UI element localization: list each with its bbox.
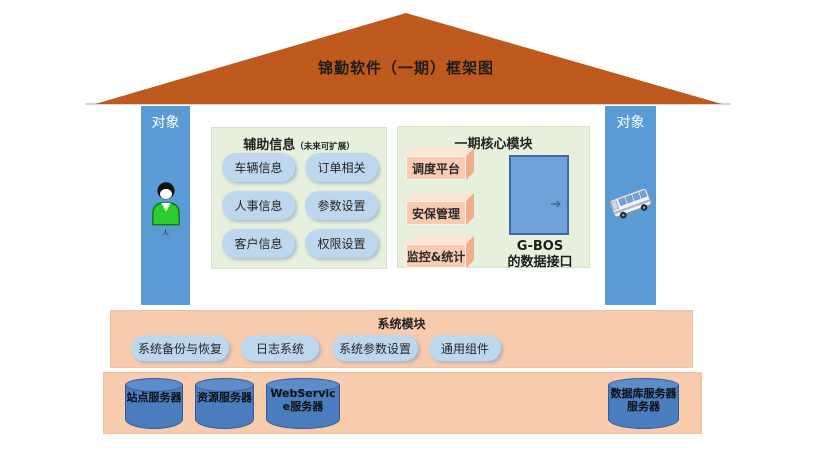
resource-server-cylinder[interactable]: 资源服务器 [195,378,254,429]
gbos-interface-label: G-BOS 的数据接口 [490,239,590,270]
person-icon [149,180,183,230]
aux-panel-subtitle: （未来可扩展） [295,142,355,152]
webservice-server-cylinder[interactable]: WebService服务器 [266,378,340,429]
aux-info-panel: 辅助信息（未来可扩展） 车辆信息 订单相关 人事信息 参数设置 客户信息 权限设… [211,127,387,269]
server-label: WebService服务器 [267,387,339,413]
system-bar-title: 系统模块 [111,315,692,332]
database-server-cylinder[interactable]: 数据库服务器服务器 [608,378,679,429]
aux-panel-title: 辅助信息 [243,138,295,153]
cylinder-top [125,378,183,392]
pillar-right-label: 对象 [605,112,656,132]
sys-button-backup-restore[interactable]: 系统备份与恢复 [131,335,229,361]
door-arrow-icon [551,193,562,212]
gbos-label-line2: 的数据接口 [490,255,590,271]
page-title: 锦勤软件（一期）框架图 [206,57,606,78]
person-caption: 人 [141,228,190,238]
aux-button-permission[interactable]: 权限设置 [305,229,378,258]
cylinder-top [195,378,254,392]
aux-button-customer-info[interactable]: 客户信息 [222,229,295,258]
module-box-top-face [406,193,474,201]
pillar-right-object: 对象 [605,106,656,305]
module-box-top-face [406,148,474,156]
bus-icon [607,180,655,230]
server-label: 数据库服务器服务器 [609,387,678,413]
aux-button-vehicle-info[interactable]: 车辆信息 [222,153,295,182]
gbos-label-line1: G-BOS [490,239,590,255]
module-monitor-stats[interactable]: 监控&统计 [406,236,474,268]
framework-diagram: 锦勤软件（一期）框架图 对象 人 对象 [0,0,813,466]
aux-button-hr-info[interactable]: 人事信息 [222,191,295,220]
server-bar: 站点服务器 资源服务器 WebService服务器 数据库服务器服务器 [103,372,702,434]
sys-button-log-system[interactable]: 日志系统 [241,335,319,361]
sys-button-common-components[interactable]: 通用组件 [429,335,501,361]
core-modules-panel: 一期核心模块 调度平台 安保管理 监控&统计 G-BOS 的数据接 [397,126,590,268]
server-label: 站点服务器 [126,391,182,404]
module-label: 安保管理 [406,201,466,225]
module-box-top-face [406,236,474,244]
module-security-mgmt[interactable]: 安保管理 [406,193,474,225]
sys-button-sys-params[interactable]: 系统参数设置 [332,335,418,361]
site-server-cylinder[interactable]: 站点服务器 [125,378,183,429]
aux-button-order-related[interactable]: 订单相关 [305,153,378,182]
pillar-left-object: 对象 人 [141,106,190,305]
gbos-door-shape [509,155,569,235]
aux-panel-header: 辅助信息（未来可扩展） [212,134,386,153]
module-dispatch-platform[interactable]: 调度平台 [406,148,474,180]
module-label: 调度平台 [406,156,466,180]
aux-button-param-config[interactable]: 参数设置 [305,191,378,220]
pillar-left-label: 对象 [141,112,190,132]
server-label: 资源服务器 [196,391,253,404]
module-label: 监控&统计 [406,244,466,268]
system-modules-bar: 系统模块 系统备份与恢复 日志系统 系统参数设置 通用组件 [110,310,693,368]
